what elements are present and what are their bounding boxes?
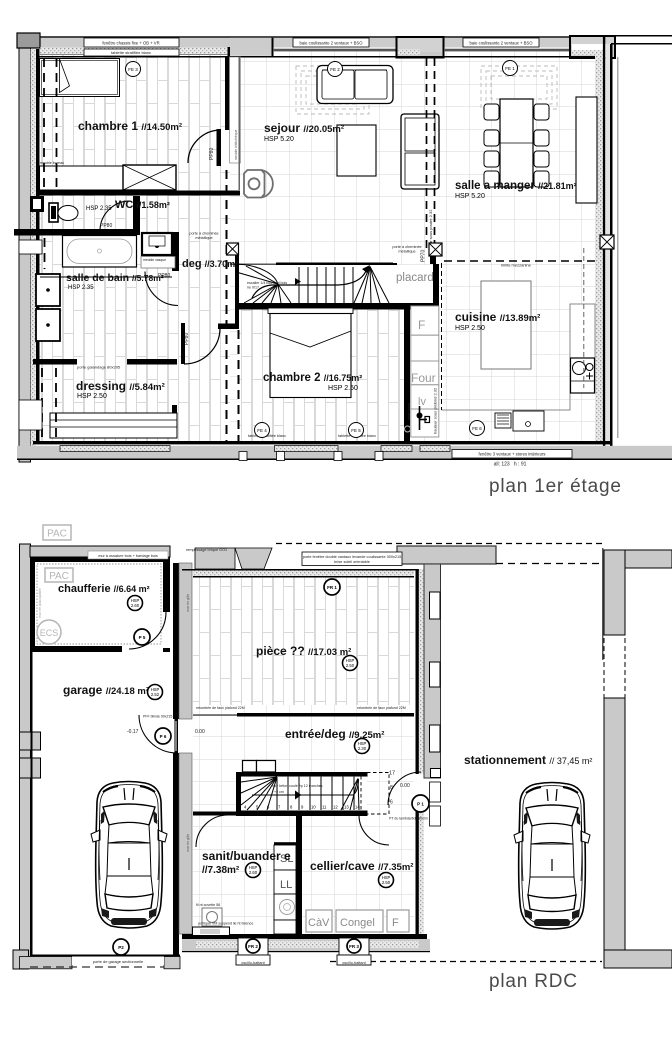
svg-text:oscillo-battant: oscillo-battant [241, 961, 265, 965]
svg-text:mur en gîte: mur en gîte [186, 834, 190, 852]
svg-text:14: 14 [355, 805, 360, 810]
svg-text:HSP 2.50: HSP 2.50 [455, 325, 485, 332]
svg-text:lave main: lave main [406, 403, 411, 420]
svg-text:HSP 2.35: HSP 2.35 [68, 285, 94, 291]
svg-text:sejour //20.05m²: sejour //20.05m² [264, 121, 344, 135]
svg-text:ne 0/17: ne 0/17 [247, 286, 259, 290]
svg-text:HSP 5.20: HSP 5.20 [264, 136, 294, 143]
svg-text:fenêtre 3 ventaux + stores int: fenêtre 3 ventaux + stores intérieurs [479, 452, 546, 457]
svg-text:plan 1er étage: plan 1er étage [489, 476, 622, 497]
svg-text:2.60: 2.60 [131, 603, 140, 608]
svg-text:PAC: PAC [47, 529, 67, 540]
svg-text:-0.17: -0.17 [127, 729, 139, 735]
svg-text://7.38m²: //7.38m² [202, 865, 240, 876]
svg-text:2.50: 2.50 [382, 880, 391, 885]
svg-text:PFF blinde 90x215: PFF blinde 90x215 [143, 715, 172, 719]
svg-text:placard: placard [396, 272, 434, 284]
svg-text:HSP 2.50: HSP 2.50 [328, 385, 358, 392]
svg-text:2.60: 2.60 [249, 870, 258, 875]
svg-text:0.00: 0.00 [195, 729, 205, 735]
svg-text:13: 13 [344, 805, 349, 810]
svg-text:FE 1: FE 1 [505, 66, 515, 71]
svg-text:brise soleil orientable: brise soleil orientable [334, 560, 370, 564]
svg-text:WC //1.58m²: WC //1.58m² [115, 199, 170, 211]
svg-text:retombée de faux plafond 22M: retombée de faux plafond 22M [196, 706, 245, 710]
svg-text:PP80: PP80 [100, 223, 112, 229]
svg-text:entrée/deg //9.25m²: entrée/deg //9.25m² [285, 727, 384, 741]
svg-text:HSP 2.50: HSP 2.50 [77, 393, 107, 400]
svg-text:FE 5: FE 5 [351, 428, 361, 433]
svg-text:all: 123 h : 91: all: 123 h : 91 [494, 462, 527, 468]
svg-text:tablette stratifiée blanc: tablette stratifiée blanc [111, 50, 151, 55]
svg-text:ECS: ECS [40, 628, 59, 638]
svg-text:8: 8 [390, 785, 393, 791]
svg-text:10: 10 [311, 805, 316, 810]
svg-text:garage //24.18 m²: garage //24.18 m² [63, 683, 149, 697]
svg-text:chaufferie //6.64 m²: chaufferie //6.64 m² [58, 583, 150, 595]
svg-text:PAC: PAC [49, 571, 69, 582]
svg-text:cuisine //13.89m²: cuisine //13.89m² [455, 310, 540, 324]
svg-text:FE 2: FE 2 [330, 67, 340, 72]
svg-text:P 1: P 1 [417, 802, 424, 807]
svg-text:LL: LL [280, 879, 292, 891]
svg-text:porte à cheminée: porte à cheminée [392, 245, 421, 249]
svg-text:F: F [392, 917, 399, 929]
svg-text:deg //3.70m²: deg //3.70m² [182, 258, 238, 270]
svg-text:escalier 1/4 tournant bois: escalier 1/4 tournant bois [247, 281, 287, 285]
svg-text:fenêtre chassis fixe + OB + VR: fenêtre chassis fixe + OB + VR [102, 41, 159, 46]
svg-text:P 5: P 5 [139, 635, 146, 640]
svg-text:Four: Four [411, 371, 436, 385]
svg-text:0.00: 0.00 [400, 783, 410, 789]
svg-text:2.52: 2.52 [151, 692, 160, 697]
svg-text:oscillo-battant: oscillo-battant [342, 961, 366, 965]
svg-text:remplissage brique GO1: remplissage brique GO1 [186, 548, 227, 552]
svg-text:FE 3: FE 3 [128, 67, 138, 72]
svg-text:lv: lv [418, 396, 426, 408]
svg-text:17: 17 [389, 771, 395, 777]
svg-text:meuble bibliothèque: meuble bibliothèque [234, 130, 238, 160]
svg-text:baie coulissante 2 ventaux + B: baie coulissante 2 ventaux + BSO [300, 41, 364, 46]
svg-text:FE 6: FE 6 [472, 426, 482, 431]
svg-text:salle de bain //5.78m²: salle de bain //5.78m² [66, 272, 164, 284]
svg-text:plan RDC: plan RDC [489, 971, 578, 992]
svg-text:retombée de faux plafond 22M: retombée de faux plafond 22M [357, 706, 406, 710]
svg-text:meuble bureau: meuble bureau [40, 161, 64, 165]
svg-text:métallique: métallique [398, 250, 415, 254]
svg-text:chambre 2 //16.75m²: chambre 2 //16.75m² [263, 372, 362, 384]
svg-text:P2: P2 [118, 945, 124, 950]
svg-text:P 6: P 6 [160, 734, 167, 739]
svg-text:HSP 5.20: HSP 5.20 [455, 193, 485, 200]
svg-text:portique VM suspend lie ht faï: portique VM suspend lie ht faïence [198, 922, 253, 926]
svg-text:métallique: métallique [195, 236, 212, 240]
svg-text:stationnement // 37,45 m²: stationnement // 37,45 m² [464, 753, 592, 767]
svg-text:salle a manger //21.81m²: salle a manger //21.81m² [455, 180, 577, 192]
svg-text:FR 1: FR 1 [327, 585, 337, 590]
svg-text:HSP 2.35: HSP 2.35 [86, 206, 112, 212]
svg-text:2.30: 2.30 [358, 746, 367, 751]
svg-text:2.50: 2.50 [346, 663, 355, 668]
svg-text:Congel: Congel [340, 917, 375, 929]
svg-text:hauteur sous plafond 2.32: hauteur sous plafond 2.32 [433, 387, 438, 434]
svg-text:chambre 1 //14.50m²: chambre 1 //14.50m² [78, 119, 182, 133]
svg-text:12: 12 [333, 805, 338, 810]
svg-text:fil nt cuvette 58: fil nt cuvette 58 [196, 903, 220, 907]
svg-text:mur en placoplâtre: mur en placoplâtre [38, 588, 42, 618]
svg-text:FR 2: FR 2 [248, 944, 258, 949]
svg-text:11: 11 [322, 805, 327, 810]
svg-text:FR 3: FR 3 [349, 944, 359, 949]
svg-text:mur en gîte: mur en gîte [186, 594, 190, 612]
svg-text:+2 cm: +2 cm [274, 790, 284, 794]
svg-text:pièce ?? //17.03 m²: pièce ?? //17.03 m² [256, 644, 351, 658]
svg-text:porte fenêtre double vantaux l: porte fenêtre double vantaux levande cou… [303, 555, 401, 559]
svg-text:limite mezzanine: limite mezzanine [501, 263, 532, 268]
svg-text:PT du lambda/bds/90/2m: PT du lambda/bds/90/2m [389, 817, 428, 821]
svg-text:meuble vasque: meuble vasque [143, 258, 166, 262]
svg-text:PP80: PP80 [209, 148, 215, 160]
svg-text:porte de garage sectionnelle: porte de garage sectionnelle [93, 959, 144, 964]
svg-text:porte à cheminée: porte à cheminée [189, 232, 218, 236]
svg-text:cellier/cave //7.35m²: cellier/cave //7.35m² [310, 859, 413, 873]
svg-text:baie coulissante 2 ventaux + B: baie coulissante 2 ventaux + BSO [470, 41, 534, 46]
svg-text:F: F [418, 318, 425, 332]
svg-text:mur à ossature bois + bardage: mur à ossature bois + bardage bois [98, 554, 158, 558]
svg-text:dressing //5.84m²: dressing //5.84m² [76, 379, 165, 393]
svg-text:6: 6 [390, 800, 393, 806]
svg-text:FE 4: FE 4 [257, 428, 267, 433]
svg-text:CàV: CàV [308, 917, 330, 929]
svg-text:sanit/buander e: sanit/buander e [202, 849, 291, 863]
svg-text:mur béton coulé ép 12 marches: mur béton coulé ép 12 marches [272, 784, 323, 788]
svg-text:PP70: PP70 [421, 250, 427, 262]
svg-text:porte galandage 80x205: porte galandage 80x205 [77, 365, 121, 370]
